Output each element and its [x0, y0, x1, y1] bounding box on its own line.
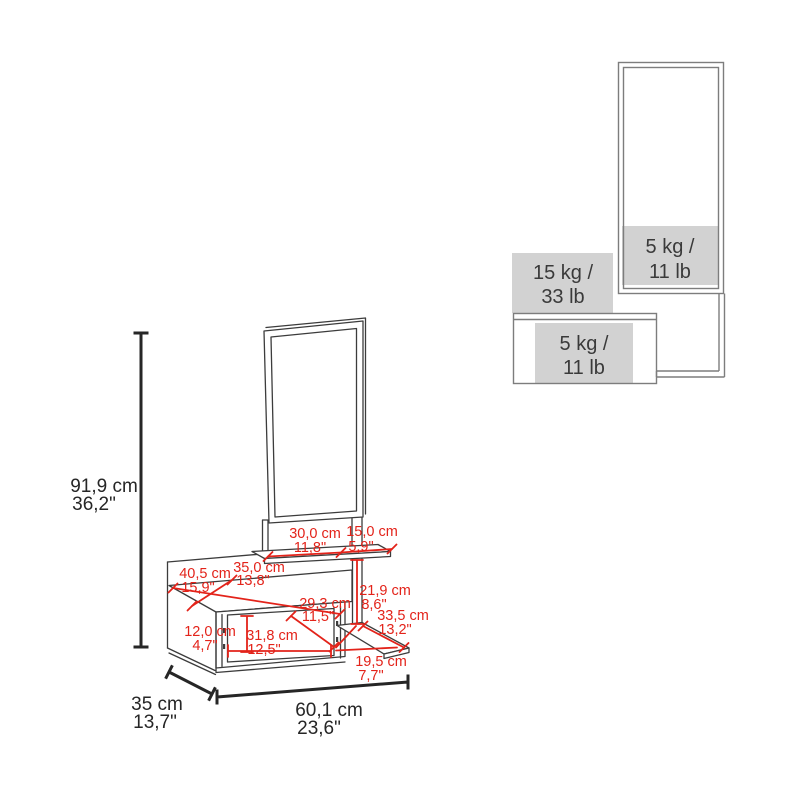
top-load-label-line1: 15 kg / [533, 262, 593, 284]
furniture-drawing [168, 318, 410, 675]
furniture-dimension-sheet: 5 kg / 11 lb 15 kg / 33 lb 5 kg / 11 lb [0, 0, 800, 800]
dim-label: 23,6" [297, 718, 341, 739]
dim-overall-width: 60,1 cm 23,6" [217, 675, 408, 740]
top-load-label-line2: 33 lb [541, 286, 584, 308]
capacity-diagram: 5 kg / 11 lb 15 kg / 33 lb 5 kg / 11 lb [512, 63, 725, 384]
mirror-load-label-line1: 5 kg / [646, 236, 695, 258]
pin-mark [336, 637, 338, 642]
shelf-load-label-line1: 5 kg / [560, 333, 609, 355]
dim-label: 36,2" [72, 494, 116, 515]
dim-label: 11,5" [302, 609, 334, 625]
mirror [264, 318, 366, 523]
dim-label: 13,7" [133, 712, 177, 733]
dim-label: 15,0 cm [346, 524, 398, 540]
capacity-right-panel [657, 294, 725, 378]
dim-overall-depth: 35 cm 13,7" [131, 665, 215, 733]
dim-overall-height: 91,9 cm 36,2" [70, 333, 148, 647]
dim-label: 13,2" [378, 622, 411, 638]
mirror-glass [271, 329, 357, 518]
dim-label: 13,8" [236, 573, 269, 589]
mirror-load-label-line2: 11 lb [649, 261, 691, 283]
dim-label: 7,7" [358, 668, 383, 684]
dim-label: 4,7" [192, 638, 217, 654]
shelf-load-label-line2: 11 lb [563, 357, 605, 379]
dim-label: 12,5" [247, 642, 280, 658]
dim-label: 11,8" [294, 540, 326, 556]
dim-label: 5,9" [348, 539, 373, 555]
pin-mark [223, 644, 225, 649]
